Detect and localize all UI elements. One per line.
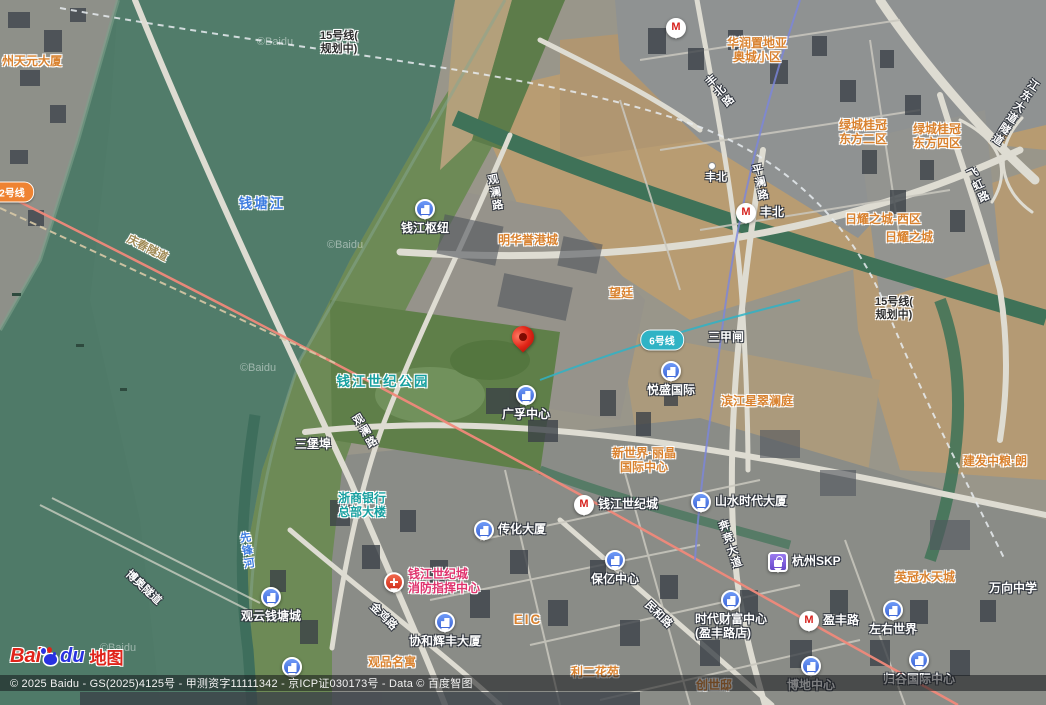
metro-line2-badge: 2号线 — [0, 182, 34, 203]
poi-yuesheng-international[interactable]: 悦盛国际 — [647, 361, 695, 398]
poi-label: 广孚中心 — [502, 408, 550, 422]
label-line: 绿城桂冠 — [913, 122, 961, 136]
station-icon-top[interactable] — [666, 18, 686, 38]
label-line: 规划中) — [320, 43, 358, 56]
label-lvcheng-guiguan-dongfang2[interactable]: 绿城桂冠 东方二区 — [839, 118, 887, 146]
poi-xiehe-huifeng-tower[interactable]: 协和辉丰大厦 — [409, 612, 481, 649]
logo-text: du — [60, 645, 84, 668]
label-line: 新世界·丽晶 — [612, 446, 676, 460]
label-line: 绿城桂冠 — [839, 118, 887, 132]
label-tianyuan-tower[interactable]: 州天元大厦 — [2, 54, 62, 68]
label-eic[interactable]: EIC — [514, 612, 543, 628]
logo-text: Bai — [10, 645, 41, 668]
poi-zuoyou-world[interactable]: 左右世界 — [869, 600, 917, 637]
poi-label: 钱江世纪城 消防指挥中心 — [408, 568, 480, 596]
label-line: 规划中) — [875, 309, 913, 322]
station-label: 钱江世纪城 — [598, 498, 658, 512]
poi-fire-command-center[interactable]: 钱江世纪城 消防指挥中心 — [384, 568, 480, 596]
poi-chuanhua-tower[interactable]: 传化大厦 — [474, 520, 546, 540]
poi-hangzhou-skp[interactable]: 杭州SKP — [768, 552, 841, 572]
poi-label: 左右世界 — [869, 623, 917, 637]
poi-unlabeled-building[interactable] — [282, 657, 302, 677]
shopping-bag-icon — [768, 552, 788, 572]
label-line: 浙商银行 — [338, 491, 386, 505]
label-line: 15号线( — [875, 296, 913, 309]
poi-guangfu-center[interactable]: 广孚中心 — [502, 385, 550, 422]
building-poi-icon — [605, 550, 625, 570]
label-new-world-center[interactable]: 新世界·丽晶 国际中心 — [612, 446, 676, 474]
copyright-bar: © 2025 Baidu - GS(2025)4125号 - 甲测资字11111… — [0, 675, 1046, 691]
pin-head — [507, 321, 538, 352]
metro-line6-badge: 6号线 — [640, 330, 684, 351]
poi-label: 悦盛国际 — [647, 384, 695, 398]
building-poi-icon — [661, 361, 681, 381]
label-line: 时代财富中心 — [695, 613, 767, 627]
poi-guanyun-qiantang[interactable]: 观云钱塘城 — [241, 587, 301, 624]
label-zheshang-bank[interactable]: 浙商银行 总部大楼 — [338, 491, 386, 519]
poi-label: 杭州SKP — [792, 555, 841, 569]
poi-label: 时代财富中心 (盈丰路店) — [695, 613, 767, 641]
building-poi-icon — [721, 590, 741, 610]
building-poi-icon — [516, 385, 536, 405]
metro-icon — [574, 495, 594, 515]
station-qianjiang-century-city[interactable]: 钱江世纪城 — [574, 495, 658, 515]
station-fengbei[interactable]: 丰北 — [736, 203, 784, 223]
label-huarun-yaaocheng[interactable]: 华润置地亚 奥城小区 — [727, 36, 787, 64]
label-lvcheng-guiguan-dongfang4[interactable]: 绿城桂冠 东方四区 — [913, 122, 961, 150]
label-line: 东方四区 — [913, 136, 961, 150]
building-poi-icon — [415, 199, 435, 219]
building-poi-icon — [261, 587, 281, 607]
station-yingfeng-road[interactable]: 盈丰路 — [799, 611, 859, 631]
copyright-text: © 2025 Baidu - GS(2025)4125号 - 甲测资字11111… — [10, 675, 473, 691]
logo-text-cn: 地图 — [90, 644, 124, 669]
baidu-watermark: ©Baidu — [240, 362, 276, 374]
baidu-watermark: ©Baidu — [257, 36, 293, 48]
label-jianfa-zhongliang[interactable]: 建发中粮·朗 — [963, 454, 1027, 468]
map-canvas[interactable]: ©Baidu ©Baidu ©Baidu ©Baidu 州天元大厦 15号线( … — [0, 0, 1046, 705]
label-line: (盈丰路店) — [695, 627, 767, 641]
building-poi-icon — [909, 650, 929, 670]
label-riyao-west[interactable]: 日耀之城-西区 — [845, 212, 921, 226]
poi-label: 山水时代大厦 — [715, 495, 787, 509]
label-fengbei-entrance: 丰北 — [705, 172, 727, 185]
label-line15-planned-right: 15号线( 规划中) — [875, 296, 913, 322]
label-qiantang-river: 钱塘江 — [239, 196, 286, 212]
label-guanpin-mingyu[interactable]: 观品名寓 — [368, 655, 416, 669]
label-line15-planned-top: 15号线( 规划中) — [320, 30, 358, 56]
label-wangting[interactable]: 望廷 — [609, 286, 633, 300]
metro-icon — [736, 203, 756, 223]
label-riyao[interactable]: 日耀之城 — [885, 230, 933, 244]
metro-icon — [799, 611, 819, 631]
label-wanxiang-school[interactable]: 万向中学 — [989, 581, 1037, 595]
poi-shanshui-times-tower[interactable]: 山水时代大厦 — [691, 492, 787, 512]
destination-pin[interactable] — [511, 326, 535, 358]
label-line: 消防指挥中心 — [408, 582, 480, 596]
label-binjiang-xingcui[interactable]: 滨江星翠澜庭 — [721, 394, 793, 408]
poi-qianjiang-hub[interactable]: 钱江枢纽 — [401, 199, 449, 236]
poi-label: 保亿中心 — [591, 573, 639, 587]
poi-label: 钱江枢纽 — [401, 222, 449, 236]
label-line: 奥城小区 — [727, 50, 787, 64]
building-poi-icon — [435, 612, 455, 632]
building-poi-icon — [883, 600, 903, 620]
station-label: 盈丰路 — [823, 614, 859, 628]
poi-label: 观云钱塘城 — [241, 610, 301, 624]
station-label: 丰北 — [760, 206, 784, 220]
baidu-watermark: ©Baidu — [327, 239, 363, 251]
poi-baoyi-center[interactable]: 保亿中心 — [591, 550, 639, 587]
label-minghua-yugangcheng[interactable]: 明华誉港城 — [498, 233, 558, 247]
label-line: 15号线( — [320, 30, 358, 43]
poi-times-wealth-center[interactable]: 时代财富中心 (盈丰路店) — [695, 590, 767, 641]
poi-label: 传化大厦 — [498, 523, 546, 537]
building-poi-icon — [801, 656, 821, 676]
label-line: 钱江世纪城 — [408, 568, 480, 582]
label-line: 东方二区 — [839, 132, 887, 146]
label-line: 总部大楼 — [338, 505, 386, 519]
paw-icon — [44, 654, 57, 665]
station-entrance-dot — [708, 162, 716, 170]
metro-icon — [666, 18, 686, 38]
label-sanbaobu[interactable]: 三堡埠 — [295, 437, 331, 451]
label-yingguan-water-city[interactable]: 英冠水天城 — [895, 570, 955, 584]
building-poi-icon — [282, 657, 302, 677]
label-century-park[interactable]: 钱江世纪公园 — [337, 374, 430, 390]
fire-station-icon — [384, 572, 404, 592]
poi-label: 协和辉丰大厦 — [409, 635, 481, 649]
baidu-maps-logo: Bai du 地图 — [10, 644, 124, 669]
building-poi-icon — [691, 492, 711, 512]
label-line: 国际中心 — [612, 460, 676, 474]
label-sanjiazha[interactable]: 三甲闸 — [708, 330, 744, 344]
label-line: 华润置地亚 — [727, 36, 787, 50]
building-poi-icon — [474, 520, 494, 540]
